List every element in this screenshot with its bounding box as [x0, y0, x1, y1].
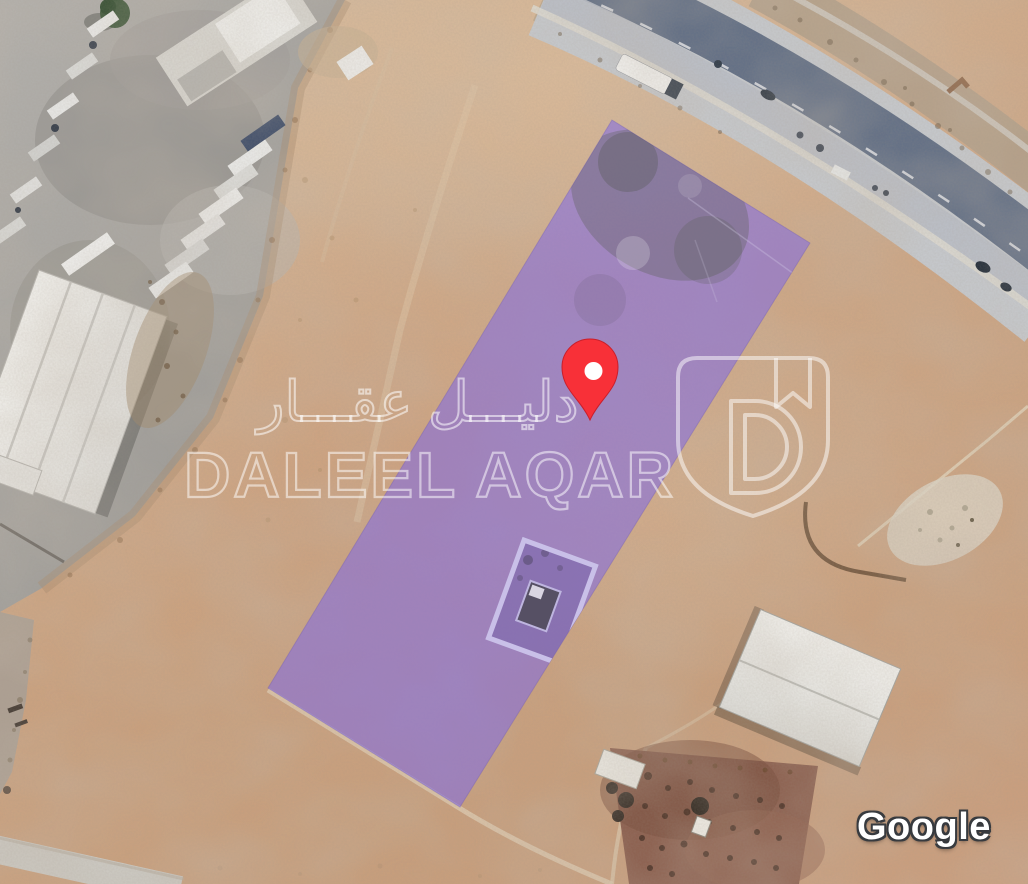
satellite-map[interactable]: دليـــل عقـــار DALEEL AQAR Google: [0, 0, 1028, 884]
google-attribution[interactable]: Google: [857, 806, 991, 849]
map-art-layer: [0, 0, 1028, 884]
